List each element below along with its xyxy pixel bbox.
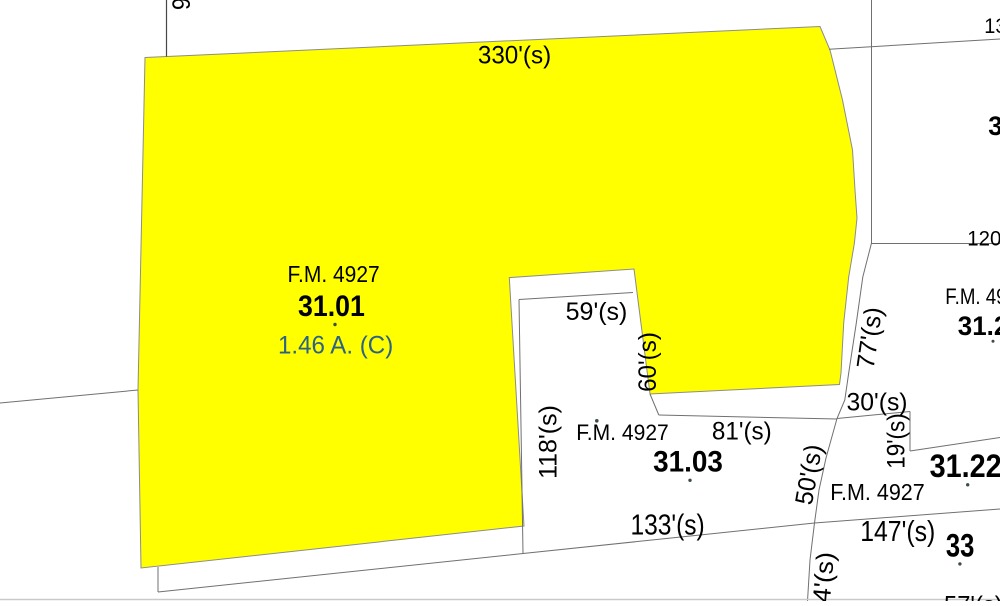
svg-text:F.M. 4927: F.M. 4927 (830, 479, 924, 505)
svg-text:147'(s): 147'(s) (860, 515, 935, 547)
svg-text:130'(s): 130'(s) (984, 15, 1000, 39)
svg-text:F.M. 4927: F.M. 4927 (576, 419, 669, 445)
svg-text:120'(s): 120'(s) (967, 227, 1000, 251)
svg-text:96'(s): 96'(s) (168, 0, 196, 10)
svg-text:33: 33 (946, 529, 974, 564)
svg-text:118'(s): 118'(s) (535, 405, 563, 479)
svg-text:30'(s): 30'(s) (846, 389, 907, 417)
svg-text:59'(s): 59'(s) (566, 298, 628, 326)
svg-text:F.M. 4927: F.M. 4927 (288, 261, 380, 287)
svg-text:F.M. 4927: F.M. 4927 (945, 285, 1000, 309)
svg-text:330'(s): 330'(s) (478, 42, 551, 69)
svg-text:19'(s): 19'(s) (882, 413, 910, 469)
svg-text:31.21: 31.21 (958, 311, 1000, 342)
svg-text:31.22: 31.22 (930, 449, 1000, 485)
svg-text:57'(s): 57'(s) (944, 592, 1000, 601)
svg-text:1.46 A. (C): 1.46 A. (C) (278, 332, 393, 359)
svg-text:4'(s): 4'(s) (809, 551, 840, 601)
svg-text:81'(s): 81'(s) (712, 418, 772, 445)
svg-text:133'(s): 133'(s) (630, 509, 704, 541)
svg-text:31.21: 31.21 (988, 110, 1000, 141)
svg-text:31.01: 31.01 (298, 290, 365, 324)
svg-text:60'(s): 60'(s) (635, 332, 662, 392)
svg-text:31.03: 31.03 (653, 446, 723, 479)
